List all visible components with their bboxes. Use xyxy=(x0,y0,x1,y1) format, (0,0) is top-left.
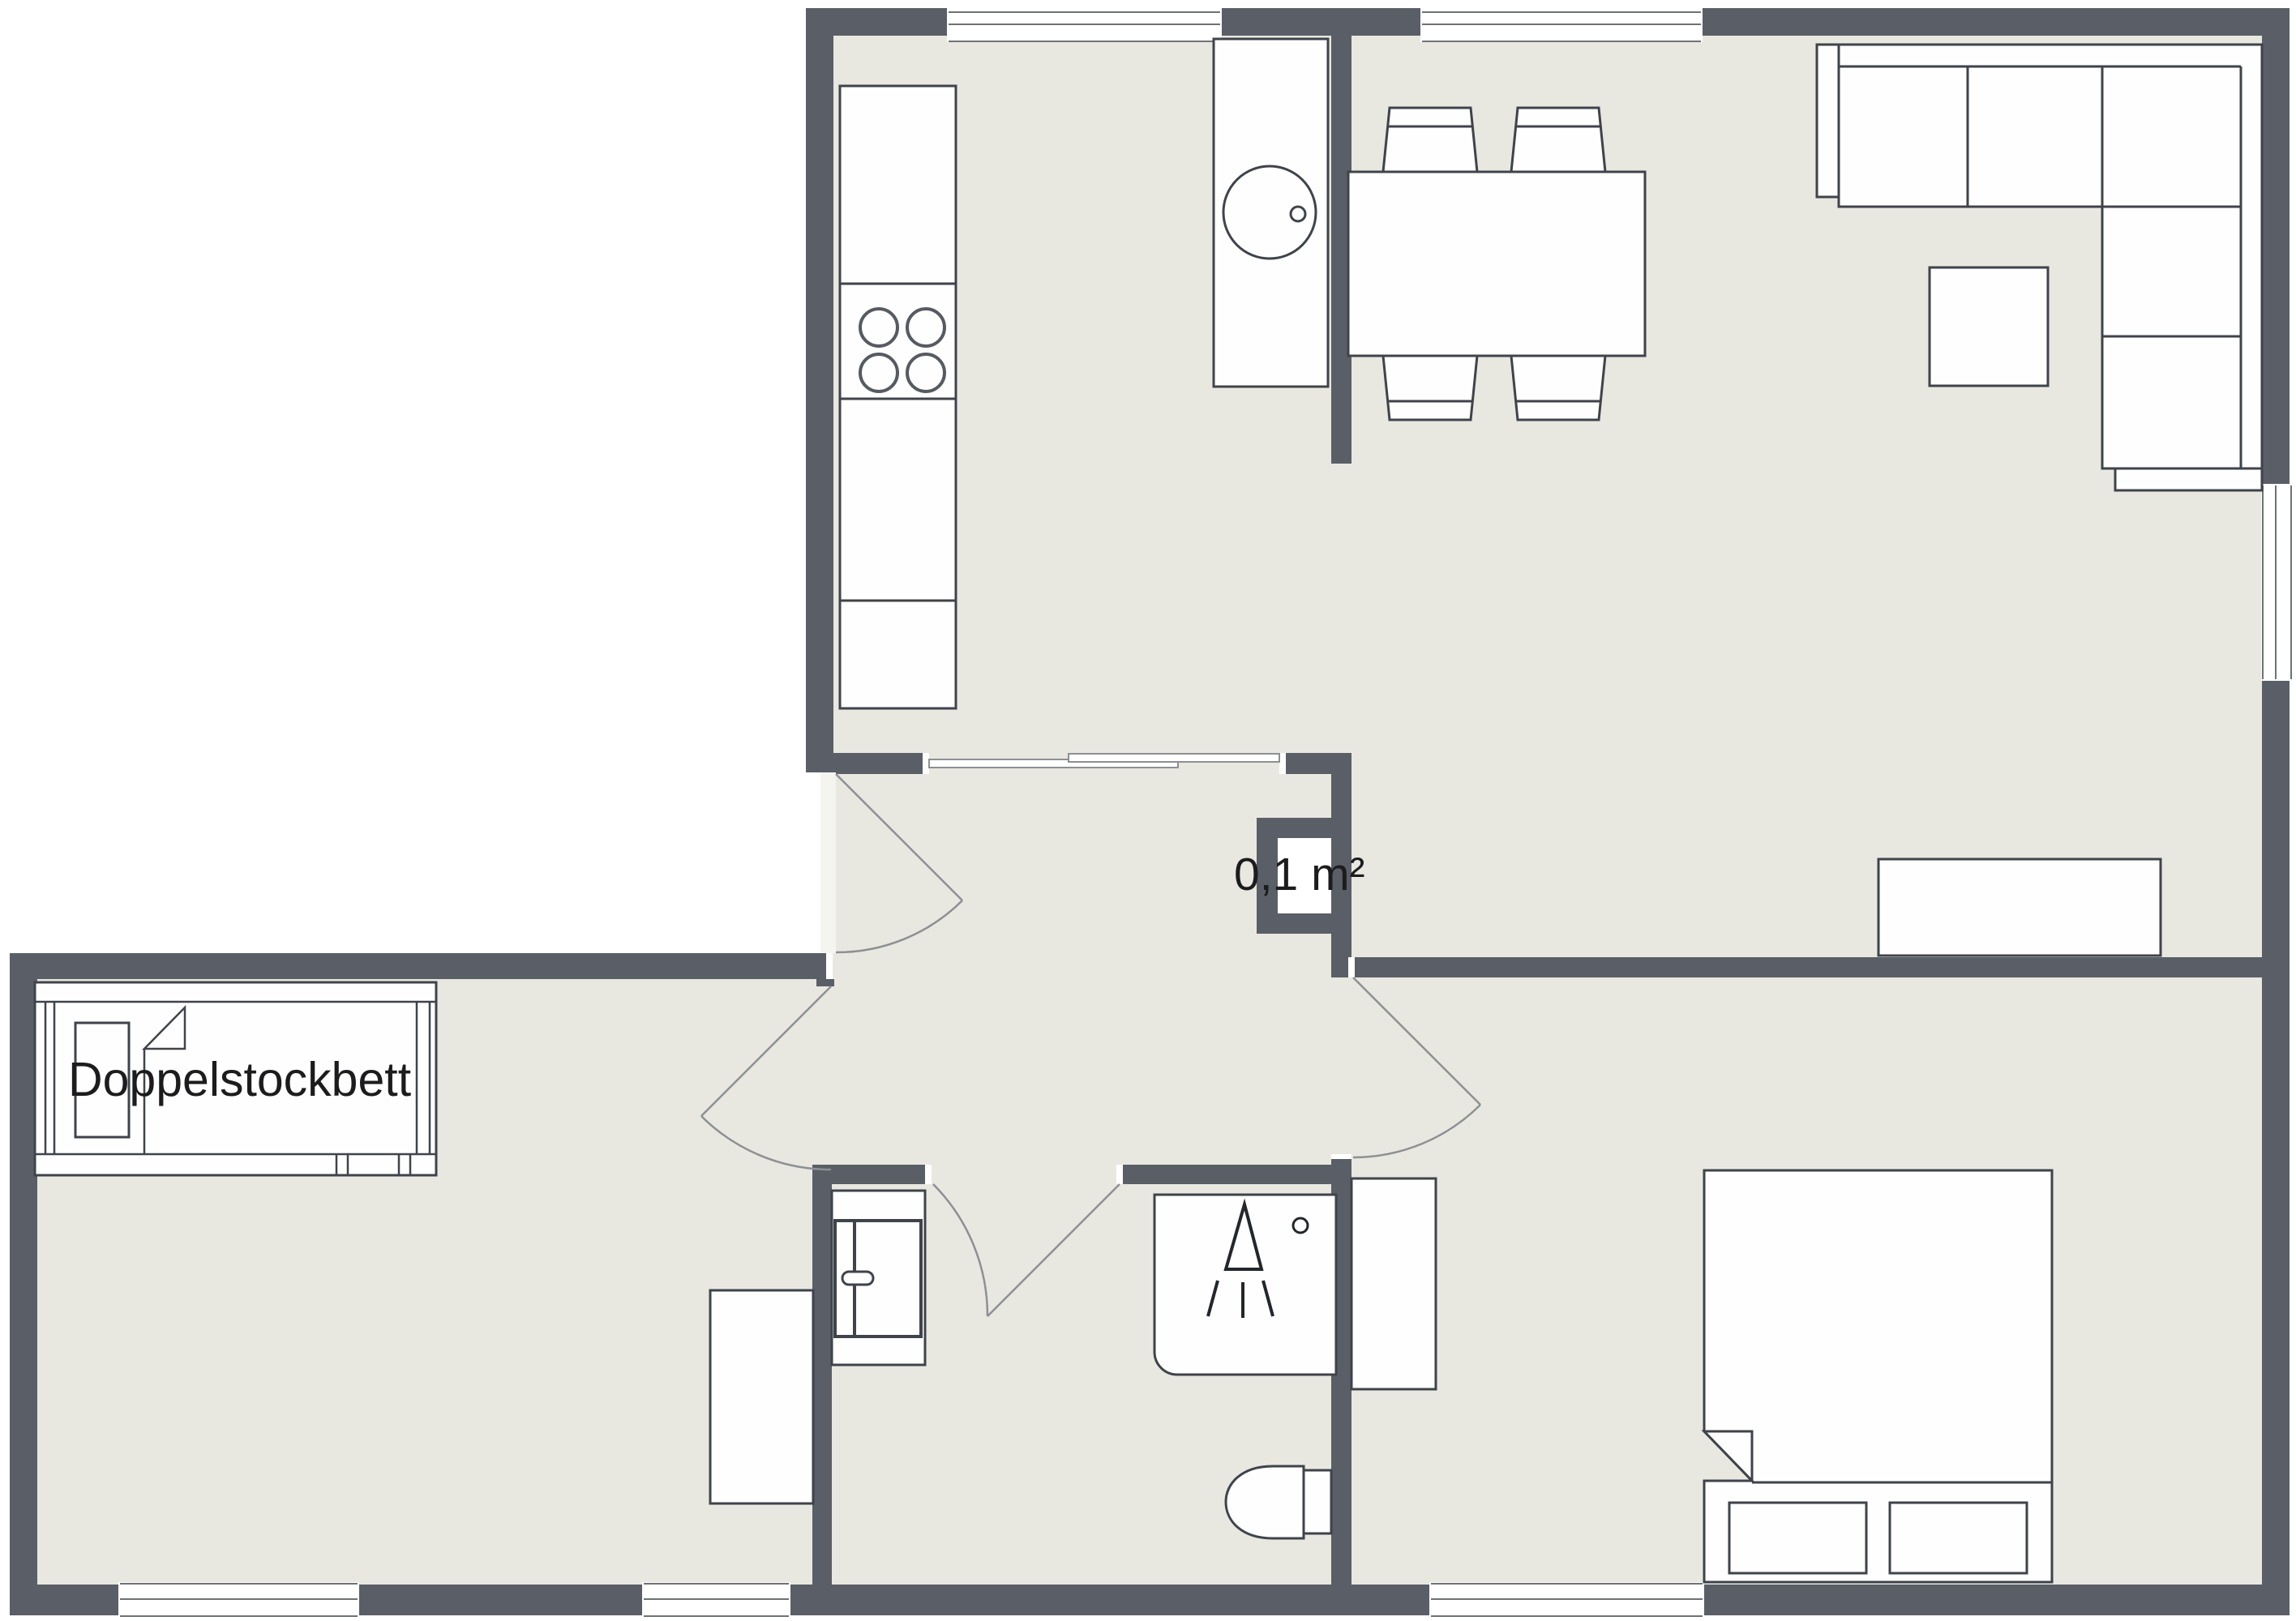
svg-text:0,1 m²: 0,1 m² xyxy=(1234,849,1365,900)
svg-text:Doppelstockbett: Doppelstockbett xyxy=(68,1053,411,1106)
